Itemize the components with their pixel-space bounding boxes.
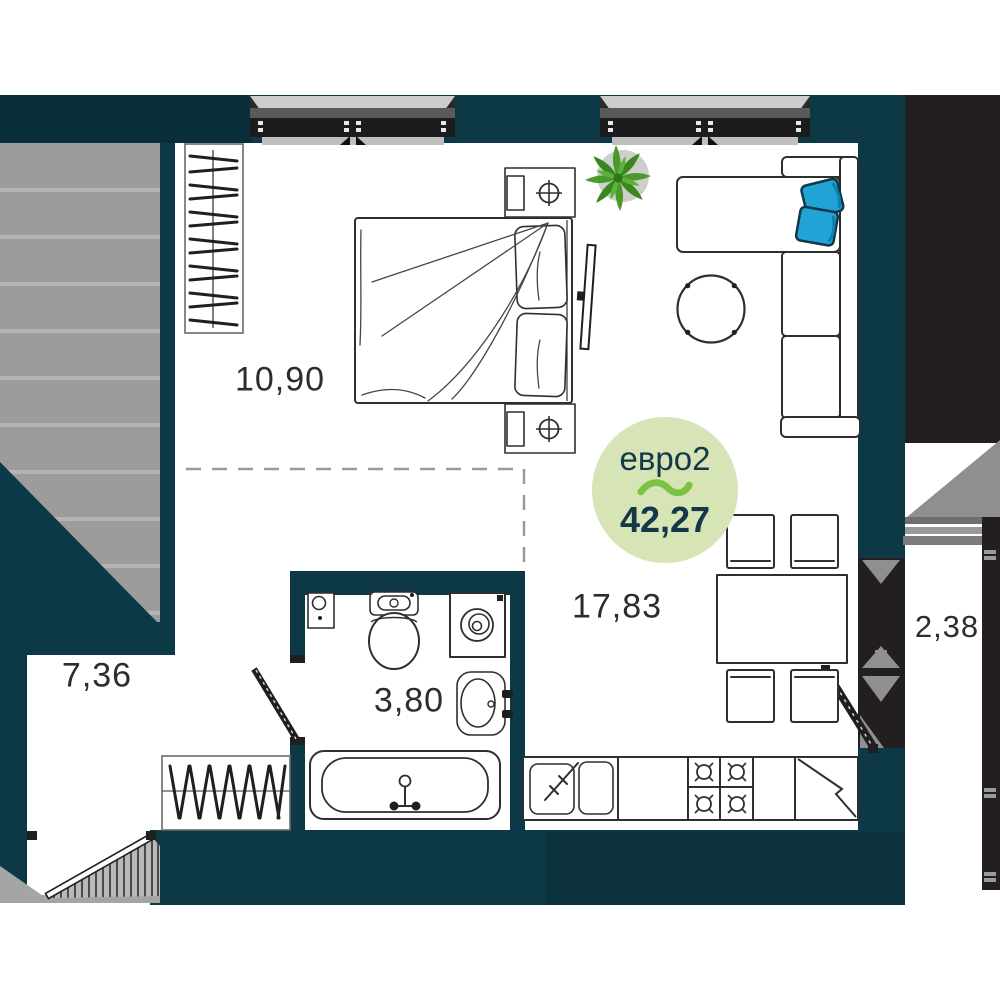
hallway-area-label: 7,36 xyxy=(62,657,132,696)
tv-icon xyxy=(573,244,595,349)
nightstand-icon xyxy=(505,168,575,217)
coffee-table-icon xyxy=(678,276,745,343)
washing-machine-icon xyxy=(450,593,505,657)
kitchen-sink-icon xyxy=(530,762,613,814)
chair-icon xyxy=(791,670,838,722)
kitchen-living-area-label: 17,83 xyxy=(572,588,662,627)
shoe-rack-icon xyxy=(162,756,290,830)
chair-icon xyxy=(727,670,774,722)
floorplan: 10,90 17,83 3,80 7,36 2,38 евро2 42,27 xyxy=(0,0,1000,1000)
zone-divider xyxy=(186,469,524,571)
loggia xyxy=(905,517,1000,890)
water-heater-icon xyxy=(308,593,334,628)
kitchen-counter xyxy=(523,757,858,820)
bathroom-sink-icon xyxy=(457,672,513,735)
layout-type-label: евро2 xyxy=(620,442,711,475)
toilet-icon xyxy=(369,592,419,669)
pillow-icon xyxy=(795,206,838,246)
bathroom-door-icon xyxy=(251,655,305,745)
nightstand-icon xyxy=(505,404,575,453)
dining-table-icon xyxy=(717,575,847,663)
bathroom-area-label: 3,80 xyxy=(374,682,444,721)
total-area-value: 42,27 xyxy=(620,502,710,538)
plant-icon xyxy=(585,145,651,211)
window-icon xyxy=(600,96,810,145)
chair-icon xyxy=(727,515,774,568)
tilde-icon xyxy=(636,477,694,499)
wardrobe-icon xyxy=(185,144,243,333)
adjacent-block xyxy=(903,95,1000,545)
window-icon xyxy=(250,96,455,145)
dining-set xyxy=(717,515,847,722)
layout-badge: евро2 42,27 xyxy=(592,417,738,563)
chair-icon xyxy=(791,515,838,568)
loggia-area-label: 2,38 xyxy=(915,609,979,645)
double-bed-icon xyxy=(355,218,572,403)
bedroom-area-label: 10,90 xyxy=(235,361,325,400)
neighbor-area xyxy=(0,143,160,625)
floorplan-drawing xyxy=(0,0,1000,1000)
bathtub-icon xyxy=(310,751,500,819)
